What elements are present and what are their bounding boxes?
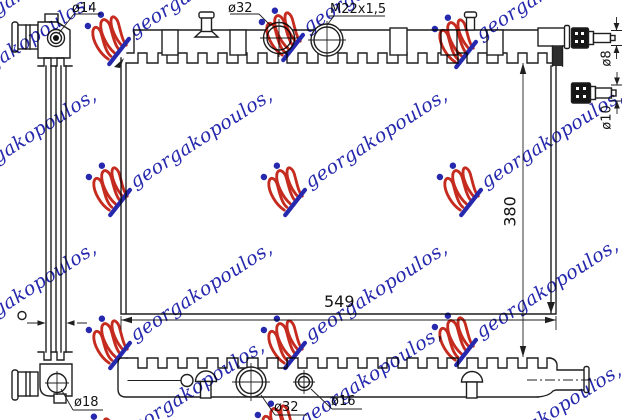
label-diameter-18: ø18 bbox=[74, 395, 99, 410]
label-width-549: 549 bbox=[324, 292, 355, 311]
bottom-tank-seam bbox=[127, 358, 550, 368]
label-height-380: 380 bbox=[501, 194, 520, 230]
drawing-strokes bbox=[12, 12, 616, 403]
radiator-technical-drawing: ø14 ø32 M22x1,5 ø8 ø10 380 549 ø18 ø32 ø… bbox=[0, 0, 622, 420]
label-diameter-10: ø10 bbox=[600, 103, 615, 133]
side-top-tabs bbox=[38, 58, 72, 66]
label-diameter-32-bottom: ø32 bbox=[274, 400, 299, 415]
label-diameter-8: ø8 bbox=[600, 46, 615, 72]
label-diameter-16: ø16 bbox=[331, 394, 356, 409]
label-thread-m22: M22x1,5 bbox=[330, 2, 386, 17]
radiator-line-drawing bbox=[0, 0, 622, 420]
dimension-lines bbox=[27, 14, 622, 415]
label-diameter-14: ø14 bbox=[72, 1, 97, 16]
label-diameter-32-top: ø32 bbox=[228, 1, 253, 16]
side-bottom-tabs bbox=[38, 352, 72, 360]
